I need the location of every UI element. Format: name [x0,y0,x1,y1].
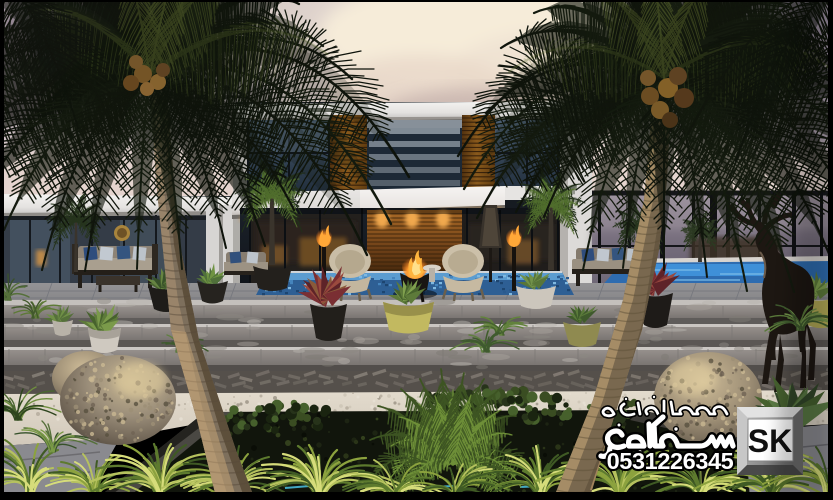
svg-text:0531226345: 0531226345 [607,448,734,474]
